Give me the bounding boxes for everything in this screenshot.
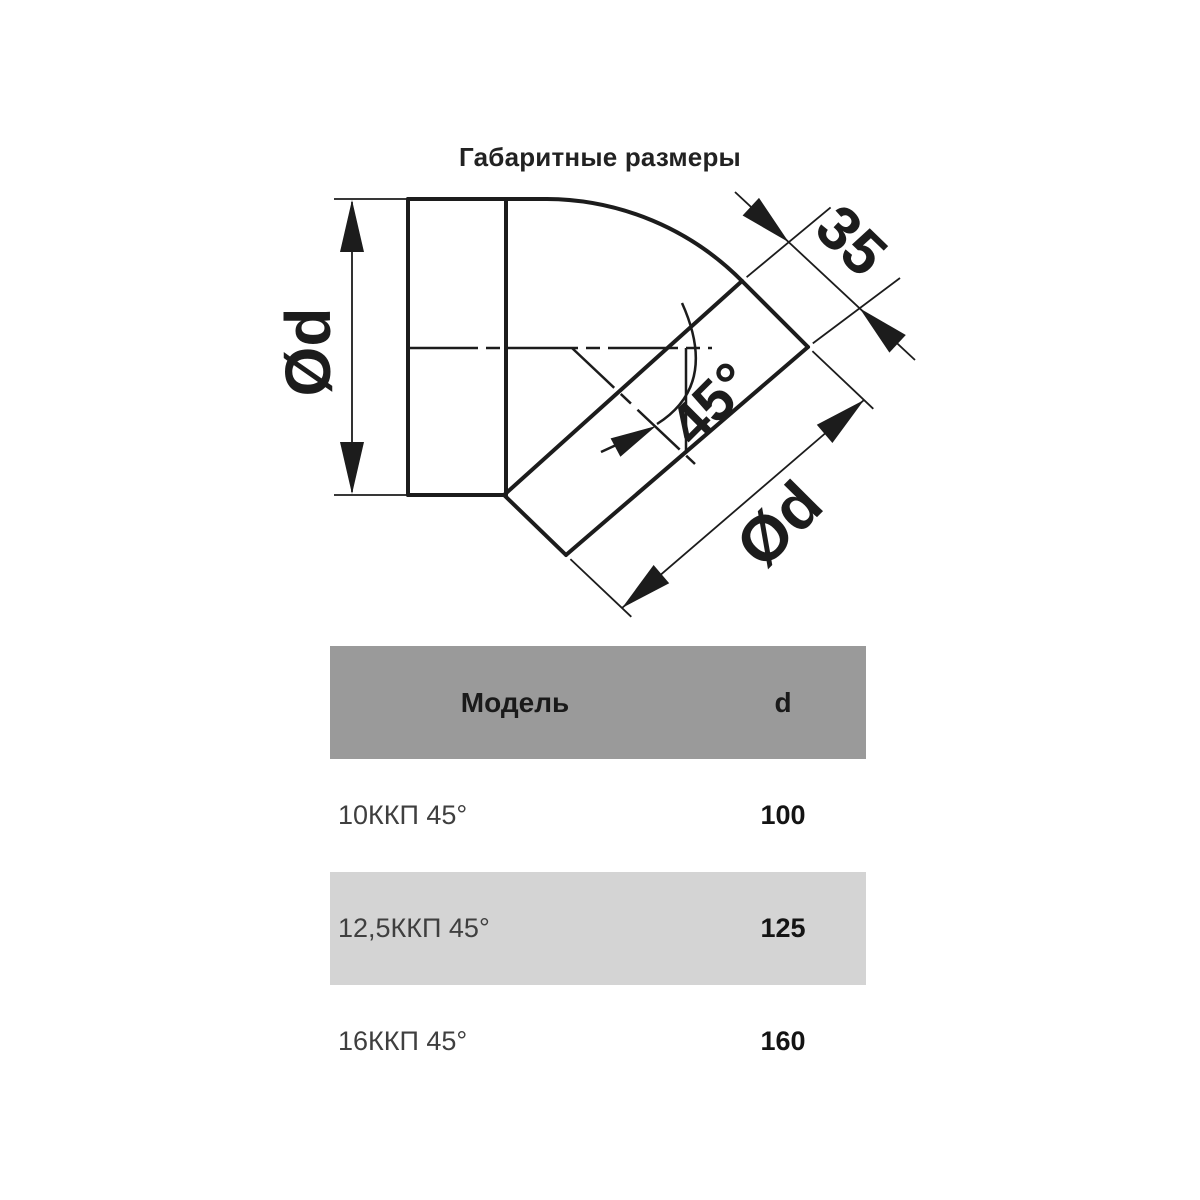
table-row: 16ККП 45° 160	[330, 985, 866, 1098]
d-value-cell: 160	[700, 1026, 866, 1057]
outlet-diameter-label: Ød	[722, 467, 836, 581]
elbow-body-outline	[408, 199, 808, 555]
arrow-inlet-top	[340, 200, 364, 252]
table-row: 12,5ККП 45° 125	[330, 872, 866, 985]
collar-length-label: 35	[802, 192, 900, 290]
model-cell: 16ККП 45°	[330, 1026, 700, 1057]
inlet-diameter-label: Ød	[272, 308, 344, 397]
page-background: Габаритные размеры	[0, 0, 1200, 1200]
outlet-collar-inner-line	[504, 495, 566, 555]
model-spec-table: Модель d 10ККП 45° 100 12,5ККП 45° 125 1…	[330, 646, 866, 1098]
table-header-model: Модель	[330, 687, 700, 719]
arrow-outlet-lower	[622, 565, 669, 608]
model-cell: 12,5ККП 45°	[330, 913, 700, 944]
model-cell: 10ККП 45°	[330, 800, 700, 831]
table-header-d: d	[700, 687, 866, 719]
centerlines	[408, 303, 712, 464]
outlet-ext-outer	[812, 351, 873, 409]
d-value-cell: 100	[700, 800, 866, 831]
arrow-angle-leader	[611, 426, 656, 457]
table-row: 10ККП 45° 100	[330, 759, 866, 872]
table-header-row: Модель d	[330, 646, 866, 759]
outlet-collar-outer-line	[742, 281, 808, 347]
outer-bend-arc	[547, 199, 742, 281]
arrow-inlet-bottom	[340, 442, 364, 494]
arrow-outlet-upper	[817, 400, 864, 443]
d-value-cell: 125	[700, 913, 866, 944]
